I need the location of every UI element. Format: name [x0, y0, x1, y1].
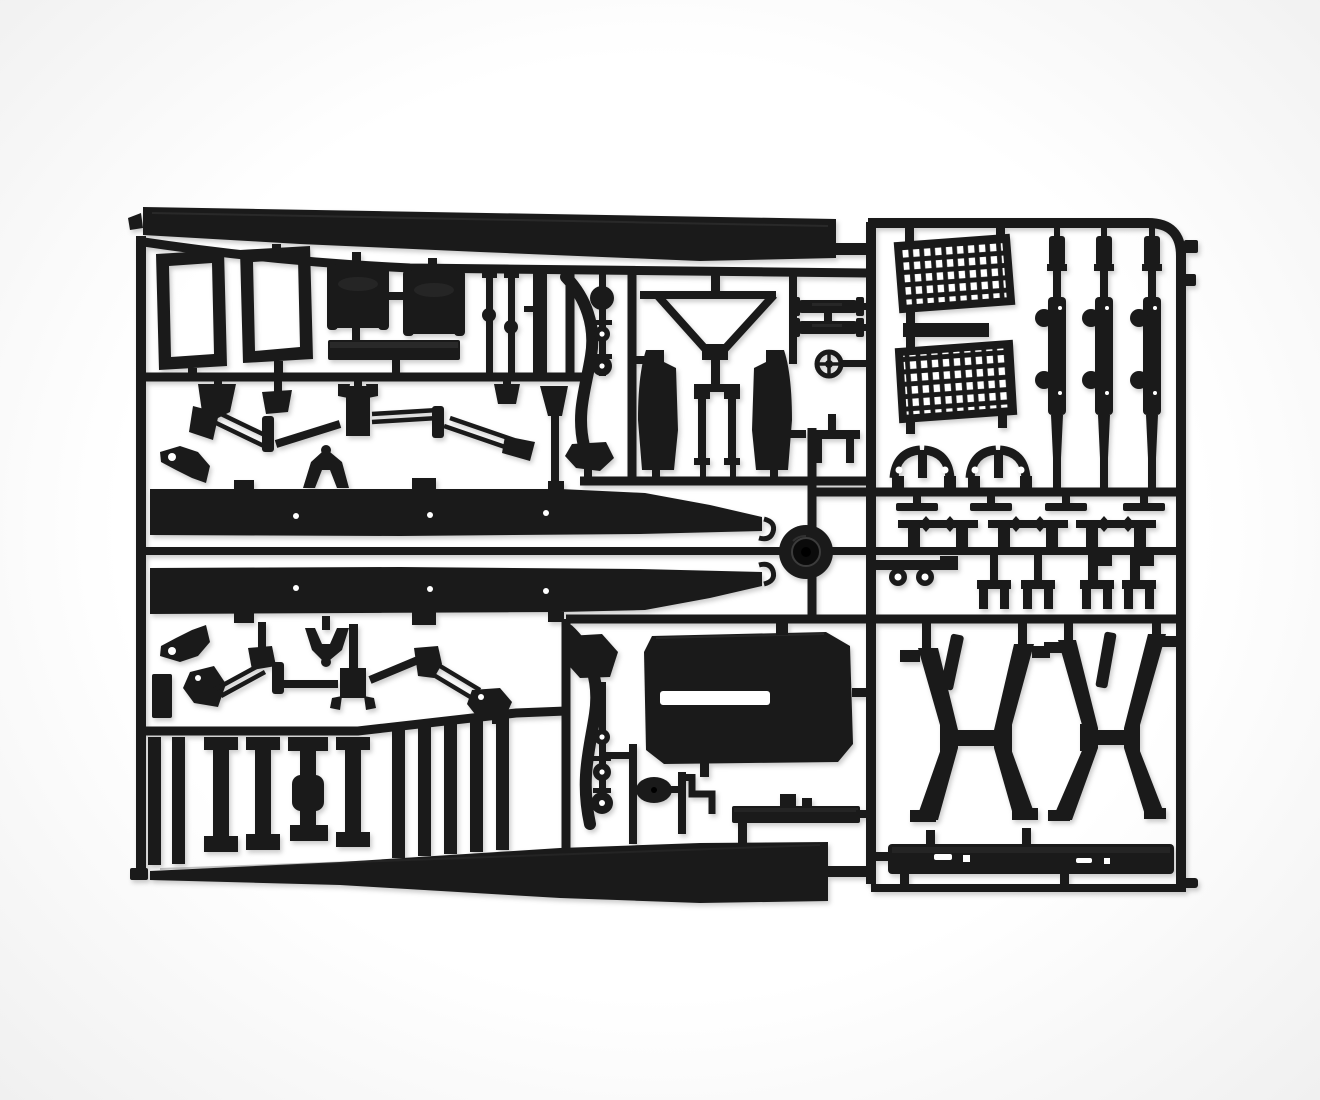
manifold-foot: [956, 528, 968, 552]
leaf-slat: [148, 737, 161, 865]
wishbone-tower-ear: [366, 384, 378, 398]
wishbone-stub: [274, 375, 282, 392]
tie-rod-shaft: [486, 271, 493, 377]
pipe-clamp-post: [918, 450, 927, 478]
fuel-tank-rim: [454, 270, 465, 336]
pipe-clamp-hole: [896, 467, 903, 474]
frame-staple-3: [1080, 555, 1114, 609]
spring-rod: [1053, 271, 1061, 299]
wishbone-arm: [444, 418, 514, 448]
runner-stub-wedge: [826, 866, 874, 877]
rivet-hole: [427, 586, 433, 592]
mesh-grille-stub: [905, 228, 914, 244]
bumper-stub: [900, 872, 909, 888]
slat-waist: [345, 750, 361, 832]
ball-joint-hole: [599, 331, 604, 336]
shackle-claw-upper: [303, 445, 349, 488]
sill-plate: [732, 794, 870, 843]
mesh-grille-1: [898, 224, 1011, 309]
staple-stub: [1034, 553, 1042, 581]
staple-leg: [1103, 589, 1112, 609]
wishbone-arm: [276, 424, 340, 444]
sill-plate-bracket: [802, 798, 812, 807]
rail-hook-upper: [160, 446, 210, 483]
shock-stub: [858, 324, 870, 331]
trestle-tab: [1044, 642, 1062, 653]
bumper-slot: [1104, 858, 1110, 864]
manifold-foot: [1086, 528, 1098, 552]
wishbone-arm: [370, 660, 418, 680]
spring-pinhole: [1058, 306, 1062, 310]
shackle-claw-pin: [321, 445, 331, 455]
fuel-tank-stub: [428, 258, 437, 274]
spring-knob: [1130, 371, 1148, 389]
a-frame-rod-cap: [724, 458, 740, 465]
rail-hook-lower: [160, 625, 210, 662]
fender-stub: [770, 468, 778, 482]
manifold-bar: [988, 520, 1068, 528]
trestle-tab: [900, 650, 920, 662]
chassis-rail-tab: [548, 612, 564, 622]
pipe-clamp-hole: [942, 467, 949, 474]
spring-knob: [1035, 309, 1053, 327]
ball-joint-crossbar: [592, 320, 612, 325]
shackle-claw-stub: [322, 616, 330, 630]
mesh-grille-stub: [996, 224, 1005, 240]
staple-leg: [979, 589, 988, 609]
a-frame-rod-cap: [724, 392, 740, 399]
shackle-plate-bar: [876, 560, 946, 570]
shackle-claw-pin: [321, 657, 331, 667]
chassis-rail-body: [150, 489, 762, 536]
pipe-clamp-foot: [892, 476, 904, 492]
frame-staple-4: [1122, 555, 1156, 609]
spring-pinhole: [1105, 306, 1109, 310]
brake-pipe: [684, 774, 712, 814]
sprue-tree: [128, 207, 1198, 903]
trestle-stub: [1018, 620, 1027, 646]
slat-flange: [246, 834, 280, 850]
slat-flange: [204, 836, 238, 852]
a-frame-rod-cap: [694, 458, 710, 465]
spring-pinhole: [1058, 391, 1062, 395]
valve-bar: [1045, 503, 1087, 511]
manifold-cone: [943, 516, 957, 532]
slat-flange: [336, 832, 370, 847]
chassis-rail-body: [150, 567, 762, 614]
wishbone-stub: [214, 376, 222, 388]
spring-cap: [1144, 236, 1160, 266]
manifold-fitting: [1076, 516, 1156, 552]
slat-waist: [300, 809, 316, 827]
chassis-rail-tab: [234, 480, 254, 491]
window-frame-2: [240, 244, 313, 378]
fender-body: [752, 350, 792, 470]
wishbone-paddle: [502, 436, 535, 461]
window-frame-body: [156, 250, 227, 370]
slat-flange: [336, 737, 370, 750]
manifold-cone: [1097, 516, 1111, 532]
rivet-hole: [543, 510, 549, 516]
wishbone-bracket: [414, 646, 442, 678]
shackle-plate: [876, 556, 958, 586]
tie-rod-stub: [524, 306, 534, 312]
a-frame-rod: [728, 392, 736, 464]
bumper-stub: [874, 852, 890, 861]
trestle-foot: [1144, 808, 1166, 819]
leaf-slat-row: [148, 716, 509, 865]
pedal-stub: [584, 466, 592, 483]
trestle-stub: [1152, 616, 1161, 636]
chassis-rail-upper: [150, 478, 774, 539]
a-frame-legs: [655, 295, 776, 352]
bumper-slot: [934, 854, 952, 860]
shackle-plate-step: [940, 556, 958, 570]
shackle-plate-hole: [895, 574, 902, 581]
rivet-hole: [293, 585, 299, 591]
fuel-tank-rim: [327, 264, 338, 330]
wishbone-hole: [478, 694, 484, 700]
manifold-bar: [898, 520, 978, 528]
chassis-rail-tab: [548, 481, 564, 491]
trestle-tab: [1162, 636, 1176, 647]
rail-hook-hole: [168, 647, 176, 655]
bumper-sheen: [892, 847, 1170, 853]
fuel-tank-stub: [388, 292, 404, 300]
tie-rod-2: [504, 271, 519, 377]
sprue-photo: Black injection-molded styrene sprue (pa…: [0, 0, 1320, 1100]
floor-wedge-panel: [150, 842, 828, 903]
fender-body: [638, 350, 678, 470]
pipe-clamp-1: [892, 450, 956, 492]
manifold-cone: [1033, 516, 1047, 532]
spring-knob: [1035, 371, 1053, 389]
manifold-foot: [998, 528, 1010, 552]
sill-plate-stub: [856, 810, 870, 818]
staple-leg: [1124, 589, 1133, 609]
manifold-foot: [1046, 528, 1058, 552]
wishbone-stub: [503, 376, 511, 386]
wishbone-tower: [346, 386, 370, 436]
sprue-foot-left: [130, 868, 148, 880]
window-frame-stub: [188, 368, 197, 379]
pipe-clamp-hole: [1018, 467, 1025, 474]
mesh-grille-panel: [898, 238, 1011, 309]
leaf-slat: [418, 724, 431, 856]
a-frame-stub: [700, 465, 706, 482]
trestle-hub: [996, 724, 1012, 752]
sill-plate-stub: [738, 822, 747, 843]
a-frame-rod-cap: [694, 392, 710, 399]
shock-absorber-body: [796, 300, 860, 313]
manifold-fitting: [988, 516, 1068, 552]
trestle-bar: [950, 730, 1002, 746]
a-frame-rod: [698, 392, 706, 464]
runner-stub-panel: [836, 243, 876, 255]
fender-half-right: [752, 350, 806, 482]
trestle-hub: [1080, 724, 1094, 751]
ball-joint: [590, 286, 614, 310]
wishbone-linkage-lower: [183, 622, 512, 724]
fender-stub: [790, 430, 806, 438]
leaf-slat-ibeam: [336, 737, 370, 847]
grille-connector-stub: [906, 335, 915, 354]
slat-waist: [255, 750, 271, 834]
mesh-grille-panel: [899, 344, 1013, 419]
ball-joint-rail: [629, 744, 637, 844]
fuel-tank-sheen: [414, 283, 454, 297]
grille-connector-bar: [903, 323, 989, 337]
staple-bar: [977, 580, 1011, 589]
pipe-clamp-foot: [944, 476, 956, 492]
manifold-foot: [1134, 528, 1146, 552]
hood-panel-stub: [776, 621, 788, 635]
pipe-clamp-foot: [968, 476, 980, 492]
spring-foot: [1053, 456, 1061, 492]
bumper-stub: [1022, 828, 1031, 846]
sprue-tab: [1184, 274, 1196, 286]
wishbone-stub: [354, 374, 362, 388]
slat-flange: [288, 737, 328, 751]
leaf-slat: [392, 726, 405, 858]
valve-bar: [970, 503, 1012, 511]
shackle-plate-hole: [922, 574, 929, 581]
slat-boss: [292, 775, 324, 811]
spring-cap: [1049, 236, 1065, 266]
mounting-bracket-leg: [846, 439, 854, 463]
bumper-slot: [963, 855, 970, 862]
spring-knob: [1082, 309, 1100, 327]
engine-hood-panel: [644, 621, 870, 777]
mounting-bracket-stub: [828, 414, 836, 432]
tie-rod-ball: [504, 320, 518, 334]
window-frame-stub: [186, 246, 195, 256]
shock-stub: [858, 303, 870, 310]
trestle-hub: [940, 724, 956, 752]
pylon-bracket: [540, 386, 568, 416]
a-frame-strut: [711, 360, 720, 386]
a-frame-apex: [702, 344, 728, 360]
tie-rod-1: [482, 271, 497, 377]
spring-collar: [1047, 264, 1067, 271]
steering-wheel-stub: [841, 360, 867, 367]
spring-foot: [1100, 456, 1108, 492]
shock-absorber-cap: [792, 297, 800, 316]
spring-cap: [1096, 236, 1112, 266]
hub-center: [801, 547, 811, 557]
grille-connector-stub: [906, 307, 915, 325]
leaf-slat-ibeam: [246, 737, 280, 850]
slat-flange: [246, 737, 280, 750]
shock-sheen: [812, 303, 842, 306]
valve-bar: [1123, 503, 1165, 511]
valve-bar: [896, 503, 938, 511]
chassis-rail-tab: [234, 612, 254, 623]
spring-taper: [1051, 415, 1063, 458]
spring-rod: [1148, 271, 1156, 299]
slat-flange: [290, 825, 328, 841]
spring-taper: [1146, 415, 1158, 458]
bumper-stub: [1060, 872, 1069, 888]
leaf-slat-boss: [288, 737, 328, 841]
spring-knob: [1082, 371, 1100, 389]
valve-fitting-row: [896, 492, 1165, 552]
trestle-bar: [1090, 730, 1132, 745]
wishbone-stub: [349, 624, 358, 670]
manifold-foot: [908, 528, 920, 552]
chassis-rail-tab: [412, 478, 436, 491]
support-stick: [940, 633, 964, 690]
spring-pinhole: [1105, 391, 1109, 395]
trestle-support-2: [1044, 616, 1176, 821]
steering-wheel: [817, 352, 867, 376]
wishbone-link: [272, 662, 284, 694]
ball-joint-stub: [606, 752, 632, 759]
rivet-hole: [427, 512, 433, 518]
horn-disc-rail: [678, 772, 686, 834]
fender-half-left: [632, 350, 678, 482]
wishbone-arm: [372, 410, 438, 422]
frame-staple-2: [1021, 553, 1055, 609]
pipe-clamp-foot: [1020, 476, 1032, 492]
shock-absorber-cap: [792, 318, 800, 337]
mesh-grille-stub: [998, 410, 1007, 428]
steering-wheel-hub: [825, 360, 833, 368]
wishbone-linkage-upper: [189, 374, 568, 489]
staple-leg: [1044, 589, 1053, 609]
rail-hook-body: [160, 446, 210, 483]
manifold-bar: [1076, 520, 1156, 528]
spring-taper: [1098, 415, 1110, 458]
slat-waist: [213, 750, 229, 836]
slat-waist: [300, 751, 316, 777]
wishbone-link: [432, 406, 444, 438]
a-frame-stub: [640, 291, 656, 299]
pipe-clamp-post: [994, 450, 1003, 478]
ball-joint-crossbar: [592, 354, 612, 359]
staple-leg: [1023, 589, 1032, 609]
stowage-plank: [328, 328, 460, 378]
leaf-slat: [172, 737, 185, 864]
wishbone-bracket: [494, 384, 520, 404]
window-frame-1: [156, 246, 227, 379]
hood-panel-stub: [700, 763, 709, 777]
hood-panel-slot: [660, 691, 770, 705]
support-stick: [1095, 631, 1117, 688]
ball-joint-hole: [599, 363, 604, 368]
tie-rod-3: [524, 270, 547, 377]
horn-disc-center: [651, 787, 657, 793]
sill-plate-bracket: [780, 794, 796, 807]
brake-pipe-body: [692, 774, 712, 814]
manifold-cone: [1121, 516, 1135, 532]
horn-disc: [636, 772, 686, 834]
manifold-cone: [1009, 516, 1023, 532]
stowage-plank-sheen: [330, 342, 458, 348]
a-frame-stub: [730, 465, 736, 482]
rivet-hole: [293, 513, 299, 519]
tie-rod-ball: [482, 308, 496, 322]
spring-collar: [1094, 264, 1114, 271]
trestle-foot: [910, 810, 936, 822]
leaf-slat: [444, 721, 457, 854]
fuel-tank-sheen: [338, 277, 378, 291]
hood-panel-stub: [852, 688, 870, 697]
staple-elbow: [1088, 555, 1112, 582]
stowage-plank-stub: [392, 360, 400, 378]
wishbone-tower-ear: [338, 384, 350, 398]
pipe-clamp-hole: [972, 467, 979, 474]
pylon-rod: [551, 416, 559, 489]
sprue-foot: [1178, 878, 1198, 888]
shock-sheen: [812, 324, 842, 327]
central-hub: [779, 525, 833, 579]
tie-rod-cap: [482, 271, 497, 278]
axle-stand-body: [152, 674, 172, 718]
manifold-fitting: [898, 516, 978, 552]
floor-wedge-body: [150, 842, 828, 903]
stowage-plank-stub: [352, 328, 360, 342]
spring-rod: [1100, 271, 1108, 299]
wishbone-bracket: [262, 390, 292, 414]
bumper-slot: [1076, 858, 1092, 863]
axle-stand: [152, 674, 172, 718]
bumper-bar: [874, 828, 1174, 888]
sill-plate-sheen: [734, 808, 858, 812]
chassis-rail-tab: [412, 612, 436, 625]
spring-knob: [1130, 309, 1148, 327]
leaf-slat: [470, 719, 483, 852]
sprue-tip: [128, 213, 143, 230]
window-frame-stub: [272, 244, 281, 252]
slat-flange: [204, 737, 238, 750]
pipe-clamp-2: [968, 450, 1032, 492]
trestle-stub: [1064, 618, 1073, 642]
leaf-slat: [496, 716, 509, 850]
shock-absorber-body: [796, 321, 860, 334]
rail-hook-body: [160, 625, 210, 662]
trestle-foot: [1012, 808, 1038, 820]
staple-stub: [990, 553, 998, 581]
leaf-spring-3: [1130, 226, 1162, 492]
spring-pinhole: [1153, 306, 1157, 310]
staple-bar: [1021, 580, 1055, 589]
mounting-bracket-leg: [814, 439, 822, 463]
spring-foot: [1148, 456, 1156, 492]
staple-leg: [1145, 589, 1154, 609]
mesh-grille-2: [899, 344, 1013, 434]
sprue-tab: [1184, 240, 1198, 253]
photo-background: Black injection-molded styrene sprue (pa…: [0, 0, 1320, 1100]
leaf-spring-2: [1082, 226, 1114, 492]
wishbone-link: [262, 416, 274, 452]
mounting-bracket: [810, 414, 860, 463]
wishbone-tower: [340, 668, 366, 698]
shackle-claw-lower: [305, 616, 349, 667]
shock-stub: [824, 312, 832, 322]
leaf-spring-1: [1035, 226, 1067, 492]
manifold-cone: [919, 516, 933, 532]
rivet-hole: [543, 588, 549, 594]
mesh-grille-stub: [906, 416, 915, 434]
ball-joint-crossbar: [593, 788, 611, 793]
brake-pipe-stub: [684, 774, 694, 781]
spring-collar: [1142, 264, 1162, 271]
fuel-tank-stub: [352, 252, 361, 268]
fuel-tank-rim: [378, 264, 389, 330]
a-frame-stub: [711, 271, 720, 295]
ball-joint-hole: [599, 769, 604, 774]
